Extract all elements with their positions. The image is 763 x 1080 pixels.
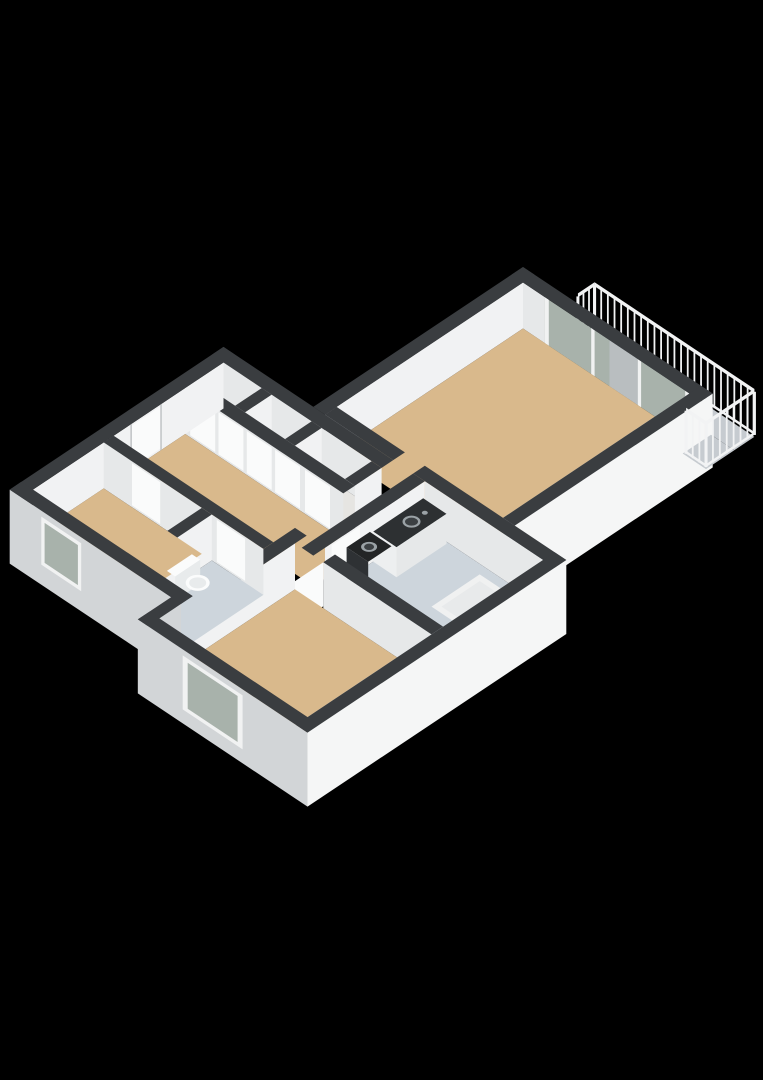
sliding-door-mullion bbox=[591, 328, 594, 376]
sliding-door-mullion bbox=[545, 297, 549, 346]
kitchen-faucet bbox=[422, 511, 428, 515]
appliance-drum bbox=[364, 544, 374, 550]
sliding-door-mullion bbox=[638, 359, 641, 407]
floorplan-scene bbox=[0, 0, 763, 1080]
floorplan-3d-view bbox=[0, 0, 763, 1080]
toilet-seat bbox=[189, 577, 206, 588]
kitchen-sink-bowl bbox=[405, 518, 418, 526]
entrance-door-frame bbox=[160, 404, 162, 451]
